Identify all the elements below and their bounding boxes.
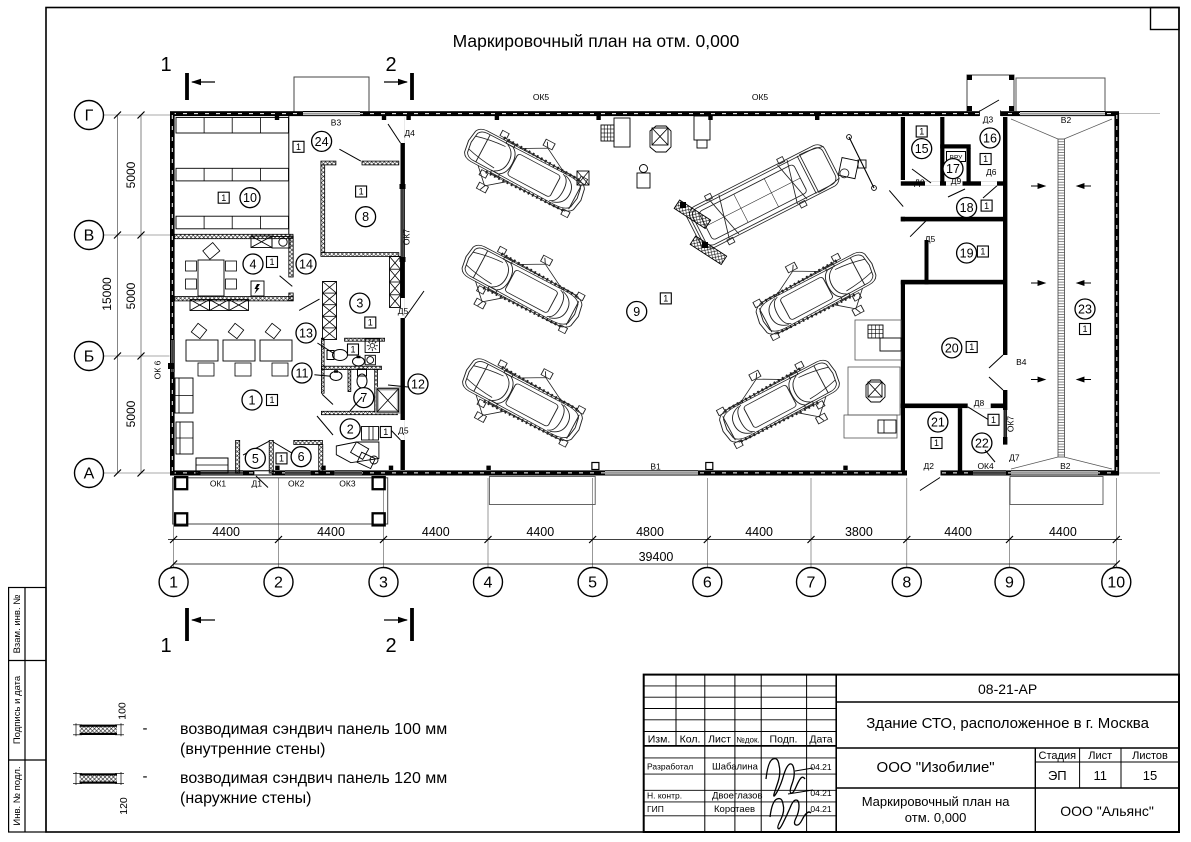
- svg-text:В4: В4: [1016, 357, 1027, 367]
- svg-text:ЭП: ЭП: [1048, 768, 1067, 783]
- svg-text:22: 22: [975, 436, 989, 450]
- svg-text:12: 12: [411, 377, 425, 391]
- svg-text:Д9: Д9: [951, 176, 962, 186]
- svg-text:Стадия: Стадия: [1039, 750, 1077, 762]
- svg-text:ОК7: ОК7: [1006, 416, 1016, 433]
- svg-text:120: 120: [118, 797, 130, 815]
- svg-text:3800: 3800: [845, 525, 873, 539]
- svg-text:9: 9: [633, 305, 640, 319]
- svg-text:(наружние стены): (наружние стены): [180, 790, 312, 807]
- svg-text:ООО "Альянс": ООО "Альянс": [1060, 803, 1154, 819]
- svg-text:Д8: Д8: [974, 398, 985, 408]
- svg-text:1: 1: [359, 187, 364, 197]
- svg-text:Д2: Д2: [923, 461, 934, 471]
- svg-text:ООО "Изобилие": ООО "Изобилие": [877, 759, 995, 776]
- svg-text:1: 1: [269, 395, 274, 405]
- svg-text:1: 1: [169, 575, 178, 592]
- svg-text:5000: 5000: [124, 161, 138, 188]
- svg-text:1: 1: [983, 154, 988, 164]
- svg-text:10: 10: [1107, 575, 1125, 592]
- svg-text:17: 17: [946, 162, 960, 176]
- svg-text:Д6: Д6: [986, 167, 997, 177]
- svg-text:1: 1: [249, 393, 256, 407]
- svg-text:15: 15: [1143, 768, 1157, 783]
- svg-text:Маркировочный план на: Маркировочный план на: [862, 794, 1011, 809]
- svg-text:19: 19: [960, 246, 974, 260]
- svg-text:-: -: [143, 768, 148, 785]
- svg-text:1: 1: [1082, 324, 1087, 334]
- svg-text:Лист: Лист: [1088, 750, 1112, 762]
- svg-text:3: 3: [356, 297, 363, 311]
- svg-text:4400: 4400: [745, 525, 773, 539]
- svg-text:20: 20: [945, 341, 959, 355]
- svg-text:Н. контр.: Н. контр.: [647, 791, 682, 801]
- svg-text:5: 5: [588, 575, 597, 592]
- svg-text:16: 16: [983, 131, 997, 145]
- svg-text:Б: Б: [84, 349, 95, 366]
- svg-text:4800: 4800: [636, 525, 664, 539]
- svg-text:Листов: Листов: [1132, 750, 1168, 762]
- svg-text:Д3: Д3: [983, 115, 994, 125]
- svg-text:10: 10: [243, 191, 257, 205]
- svg-text:Взам. инв. №: Взам. инв. №: [12, 595, 23, 654]
- svg-text:2: 2: [347, 422, 354, 436]
- svg-text:4: 4: [250, 257, 257, 271]
- svg-text:(внутренние стены): (внутренние стены): [180, 741, 325, 758]
- svg-text:ОК2: ОК2: [288, 479, 305, 489]
- svg-text:Г: Г: [85, 108, 94, 125]
- svg-text:1: 1: [296, 142, 301, 152]
- svg-text:ОК 6: ОК 6: [153, 360, 163, 379]
- svg-text:ОК5: ОК5: [533, 92, 550, 102]
- svg-text:7: 7: [807, 575, 816, 592]
- svg-text:Д8: Д8: [914, 177, 925, 187]
- svg-text:Д5: Д5: [398, 306, 409, 316]
- svg-text:18: 18: [960, 201, 974, 215]
- svg-text:9: 9: [1005, 575, 1014, 592]
- svg-text:1: 1: [383, 427, 388, 437]
- svg-text:1: 1: [269, 257, 274, 267]
- svg-text:5000: 5000: [124, 400, 138, 427]
- svg-text:ГИП: ГИП: [647, 804, 664, 814]
- svg-text:Изм.: Изм.: [648, 734, 671, 746]
- svg-text:Двоеглазов: Двоеглазов: [712, 791, 763, 802]
- svg-text:Разработал: Разработал: [647, 762, 693, 772]
- svg-text:отм. 0,000: отм. 0,000: [905, 810, 967, 825]
- svg-text:ОК7: ОК7: [402, 229, 412, 246]
- svg-text:В: В: [84, 228, 95, 245]
- svg-text:1: 1: [350, 345, 355, 355]
- svg-text:1: 1: [934, 438, 939, 448]
- svg-text:2: 2: [385, 54, 396, 76]
- svg-text:4400: 4400: [317, 525, 345, 539]
- svg-text:Дата: Дата: [809, 734, 832, 746]
- svg-text:Кол.: Кол.: [680, 734, 701, 746]
- svg-text:1: 1: [368, 318, 373, 328]
- svg-text:1: 1: [991, 415, 996, 425]
- svg-text:1: 1: [919, 127, 924, 137]
- svg-text:В2: В2: [1061, 115, 1072, 125]
- svg-text:4400: 4400: [526, 525, 554, 539]
- svg-text:1: 1: [160, 635, 171, 657]
- svg-text:2: 2: [385, 635, 396, 657]
- svg-text:ОК3: ОК3: [339, 479, 356, 489]
- svg-text:Д5: Д5: [398, 426, 409, 436]
- svg-text:3: 3: [379, 575, 388, 592]
- svg-text:15: 15: [915, 142, 929, 156]
- svg-text:Лист: Лист: [708, 734, 731, 746]
- svg-text:1: 1: [221, 193, 226, 203]
- svg-text:-: -: [143, 720, 148, 737]
- svg-text:В2: В2: [1060, 461, 1071, 471]
- svg-text:Д1: Д1: [251, 479, 262, 489]
- svg-text:100: 100: [117, 702, 129, 720]
- svg-text:Здание СТО, расположенное в г.: Здание СТО, расположенное в г. Москва: [866, 715, 1149, 732]
- svg-text:В3: В3: [331, 118, 342, 128]
- svg-text:04.21: 04.21: [810, 762, 832, 772]
- svg-text:Маркировочный план на отм. 0,0: Маркировочный план на отм. 0,000: [453, 31, 740, 51]
- svg-text:ОК5: ОК5: [752, 92, 769, 102]
- svg-text:4: 4: [484, 575, 493, 592]
- svg-text:39400: 39400: [639, 550, 674, 564]
- svg-text:1: 1: [969, 342, 974, 352]
- svg-text:ОК4: ОК4: [977, 461, 994, 471]
- svg-text:11: 11: [296, 366, 309, 380]
- svg-text:04.21: 04.21: [810, 788, 832, 798]
- svg-text:4400: 4400: [422, 525, 450, 539]
- svg-text:2: 2: [274, 575, 283, 592]
- svg-text:5000: 5000: [124, 282, 138, 309]
- svg-text:15000: 15000: [100, 277, 114, 311]
- svg-text:Д4: Д4: [404, 128, 415, 138]
- svg-text:8: 8: [362, 210, 369, 224]
- svg-text:4400: 4400: [1049, 525, 1077, 539]
- svg-text:Д7: Д7: [1009, 453, 1020, 463]
- svg-text:Коротаев: Коротаев: [714, 804, 755, 815]
- svg-text:4400: 4400: [212, 525, 240, 539]
- svg-text:Инв. № подл.: Инв. № подл.: [12, 766, 23, 825]
- svg-text:возводимая сэндвич панель 120: возводимая сэндвич панель 120 мм: [180, 770, 447, 787]
- svg-text:В1: В1: [650, 462, 661, 472]
- svg-text:6: 6: [703, 575, 712, 592]
- svg-text:ОК1: ОК1: [210, 479, 227, 489]
- svg-text:04.21: 04.21: [810, 804, 832, 814]
- svg-text:08-21-АР: 08-21-АР: [978, 681, 1037, 697]
- svg-text:5: 5: [252, 452, 259, 466]
- svg-text:13: 13: [299, 326, 313, 340]
- svg-text:Д5: Д5: [925, 234, 936, 244]
- svg-text:11: 11: [1093, 768, 1107, 783]
- svg-text:6: 6: [298, 450, 305, 464]
- svg-text:23: 23: [1078, 302, 1092, 316]
- svg-text:Шабалина: Шабалина: [712, 762, 759, 773]
- svg-text:А: А: [84, 466, 95, 483]
- svg-text:4400: 4400: [944, 525, 972, 539]
- svg-text:Подпись и дата: Подпись и дата: [12, 675, 23, 744]
- svg-text:Подп.: Подп.: [770, 734, 798, 746]
- svg-text:возводимая сэндвич панель 100: возводимая сэндвич панель 100 мм: [180, 721, 447, 738]
- svg-text:1: 1: [279, 454, 284, 464]
- svg-text:1: 1: [980, 247, 985, 257]
- svg-text:14: 14: [299, 257, 313, 271]
- svg-text:1: 1: [984, 201, 989, 211]
- svg-text:24: 24: [315, 135, 329, 149]
- svg-text:1: 1: [160, 54, 171, 76]
- svg-text:8: 8: [902, 575, 911, 592]
- svg-text:№док.: №док.: [736, 736, 759, 745]
- svg-text:1: 1: [663, 294, 668, 304]
- svg-text:21: 21: [931, 415, 945, 429]
